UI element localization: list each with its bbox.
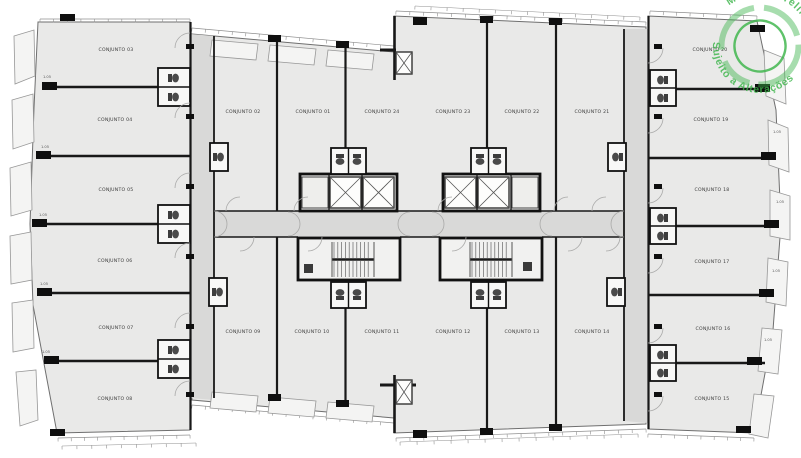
toilet-bowl bbox=[172, 93, 179, 102]
window-panel bbox=[10, 232, 32, 284]
room-label: CONJUNTO 09 bbox=[226, 329, 261, 335]
door-jamb bbox=[480, 428, 493, 435]
toilet-icon bbox=[168, 93, 179, 102]
toilet-tank bbox=[353, 154, 361, 158]
door-jamb bbox=[268, 35, 281, 42]
toilet-icon bbox=[493, 289, 502, 300]
toilet-icon bbox=[336, 289, 345, 300]
window-panel bbox=[326, 402, 374, 422]
toilet-bowl bbox=[657, 214, 664, 223]
room-label: CONJUNTO 12 bbox=[436, 329, 471, 335]
toilet-tank bbox=[168, 211, 172, 219]
room-label: CONJUNTO 17 bbox=[695, 259, 730, 265]
window-panel bbox=[758, 328, 782, 374]
dimension-label: 1.05 bbox=[773, 130, 781, 134]
toilet-tank bbox=[664, 351, 668, 359]
toilet-bowl bbox=[216, 288, 223, 297]
toilet-icon bbox=[168, 346, 179, 355]
door-jamb bbox=[186, 324, 194, 329]
dimension-label: 1.05 bbox=[43, 75, 51, 79]
window-panel bbox=[768, 120, 789, 172]
dimension-label: 1.05 bbox=[41, 145, 49, 149]
toilet-bowl bbox=[172, 74, 179, 83]
toilet-icon bbox=[213, 153, 224, 162]
room-label: CONJUNTO 03 bbox=[99, 47, 134, 53]
room-label: CONJUNTO 22 bbox=[505, 109, 540, 115]
toilet-bowl bbox=[353, 158, 362, 165]
toilet-bowl bbox=[336, 158, 345, 165]
room-label: CONJUNTO 18 bbox=[695, 187, 730, 193]
toilet-tank bbox=[168, 74, 172, 82]
door-jamb bbox=[186, 254, 194, 259]
door-jamb bbox=[654, 44, 662, 49]
room-label: CONJUNTO 15 bbox=[695, 396, 730, 402]
window-panel bbox=[14, 30, 35, 84]
toilet-tank bbox=[168, 93, 172, 101]
toilet-bowl bbox=[657, 76, 664, 85]
door-jamb bbox=[37, 288, 52, 296]
corridor-horizontal bbox=[190, 211, 650, 237]
window-panel bbox=[326, 50, 374, 70]
toilet-tank bbox=[618, 288, 622, 296]
toilet-tank bbox=[664, 76, 668, 84]
door-jamb bbox=[186, 114, 194, 119]
toilet-bowl bbox=[476, 289, 485, 296]
room-label: CONJUNTO 01 bbox=[296, 109, 331, 115]
toilet-bowl bbox=[476, 158, 485, 165]
dimension-label: 1.05 bbox=[764, 338, 772, 342]
toilet-bowl bbox=[217, 153, 224, 162]
toilet-icon bbox=[168, 365, 179, 374]
window-panel bbox=[770, 190, 790, 240]
toilet-icon bbox=[353, 154, 362, 165]
toilet-tank bbox=[168, 346, 172, 354]
stair-fixture bbox=[523, 262, 532, 271]
toilet-icon bbox=[657, 351, 668, 360]
stair-fixture bbox=[304, 264, 313, 273]
door-jamb bbox=[759, 289, 774, 297]
door-jamb bbox=[60, 14, 75, 21]
door-jamb bbox=[654, 392, 662, 397]
toilet-tank bbox=[664, 94, 668, 102]
room-label: CONJUNTO 08 bbox=[98, 396, 133, 402]
window-panel bbox=[210, 392, 258, 412]
room-label: CONJUNTO 19 bbox=[694, 117, 729, 123]
window-panel bbox=[10, 162, 32, 216]
toilet-bowl bbox=[336, 289, 345, 296]
door-jamb bbox=[186, 44, 194, 49]
toilet-icon bbox=[612, 153, 623, 162]
dimension-label: 1.05 bbox=[39, 213, 47, 217]
room-label: CONJUNTO 13 bbox=[505, 329, 540, 335]
room-label: CONJUNTO 16 bbox=[696, 326, 731, 332]
toilet-bowl bbox=[353, 289, 362, 296]
door-jamb bbox=[654, 324, 662, 329]
toilet-tank bbox=[664, 232, 668, 240]
toilet-icon bbox=[212, 288, 223, 297]
toilet-icon bbox=[657, 76, 668, 85]
toilet-bowl bbox=[172, 211, 179, 220]
window-panel bbox=[268, 45, 316, 65]
door-jamb bbox=[480, 16, 493, 23]
room-label: CONJUNTO 21 bbox=[575, 109, 610, 115]
toilet-icon bbox=[168, 74, 179, 83]
door-jamb bbox=[747, 357, 762, 365]
window-line bbox=[62, 443, 196, 446]
room-label: CONJUNTO 23 bbox=[436, 109, 471, 115]
toilet-icon bbox=[168, 230, 179, 239]
door-jamb bbox=[42, 82, 57, 90]
toilet-icon bbox=[657, 369, 668, 378]
toilet-icon bbox=[168, 211, 179, 220]
dimension-label: 1.05 bbox=[776, 200, 784, 204]
door-jamb bbox=[44, 356, 59, 364]
toilet-tank bbox=[213, 153, 217, 161]
corridor-vertical-right bbox=[624, 29, 648, 423]
toilet-icon bbox=[493, 154, 502, 165]
door-jamb bbox=[336, 41, 349, 48]
dimension-label: 1.05 bbox=[772, 269, 780, 273]
corridor-vertical-left bbox=[190, 34, 214, 400]
toilet-tank bbox=[493, 296, 501, 300]
dimension-label: 1.05 bbox=[42, 350, 50, 354]
toilet-tank bbox=[619, 153, 623, 161]
toilet-bowl bbox=[493, 158, 502, 165]
toilet-bowl bbox=[172, 346, 179, 355]
door-jamb bbox=[654, 254, 662, 259]
toilet-tank bbox=[493, 154, 501, 158]
door-jamb bbox=[32, 219, 47, 227]
door-jamb bbox=[186, 392, 194, 397]
toilet-tank bbox=[476, 154, 484, 158]
toilet-bowl bbox=[493, 289, 502, 296]
toilet-bowl bbox=[657, 232, 664, 241]
toilet-icon bbox=[353, 289, 362, 300]
window-panel bbox=[12, 94, 34, 149]
core-room bbox=[302, 177, 328, 208]
door-jamb bbox=[336, 400, 349, 407]
floor-plan-page: CONJUNTO 01CONJUNTO 02CONJUNTO 03CONJUNT… bbox=[0, 0, 801, 458]
toilet-tank bbox=[336, 154, 344, 158]
dimension-label: 1.05 bbox=[40, 282, 48, 286]
window-panel bbox=[766, 258, 788, 306]
door-jamb bbox=[750, 25, 765, 32]
room-label: CONJUNTO 06 bbox=[98, 258, 133, 264]
toilet-tank bbox=[476, 296, 484, 300]
toilet-icon bbox=[476, 289, 485, 300]
door-jamb bbox=[413, 430, 427, 438]
door-jamb bbox=[549, 424, 562, 431]
door-jamb bbox=[413, 17, 427, 25]
toilet-bowl bbox=[657, 94, 664, 103]
toilet-tank bbox=[212, 288, 216, 296]
core-room bbox=[512, 177, 538, 208]
door-jamb bbox=[268, 394, 281, 401]
toilet-bowl bbox=[611, 288, 618, 297]
window-panel bbox=[16, 370, 38, 426]
toilet-tank bbox=[168, 365, 172, 373]
door-jamb bbox=[654, 184, 662, 189]
window-panel bbox=[210, 40, 258, 60]
room-label: CONJUNTO 11 bbox=[365, 329, 400, 335]
room-label: CONJUNTO 07 bbox=[99, 325, 134, 331]
toilet-bowl bbox=[172, 365, 179, 374]
toilet-bowl bbox=[657, 351, 664, 360]
toilet-icon bbox=[476, 154, 485, 165]
door-jamb bbox=[549, 18, 562, 25]
room-label: CONJUNTO 14 bbox=[575, 329, 610, 335]
door-jamb bbox=[186, 184, 194, 189]
toilet-tank bbox=[336, 296, 344, 300]
toilet-tank bbox=[664, 369, 668, 377]
toilet-tank bbox=[664, 214, 668, 222]
toilet-bowl bbox=[612, 153, 619, 162]
toilet-tank bbox=[168, 230, 172, 238]
toilet-icon bbox=[657, 232, 668, 241]
floor-plan-drawing: CONJUNTO 01CONJUNTO 02CONJUNTO 03CONJUNT… bbox=[0, 0, 801, 458]
room-label: CONJUNTO 10 bbox=[295, 329, 330, 335]
door-jamb bbox=[764, 220, 779, 228]
toilet-tank bbox=[353, 296, 361, 300]
door-jamb bbox=[736, 426, 751, 433]
toilet-icon bbox=[611, 288, 622, 297]
door-jamb bbox=[36, 151, 51, 159]
toilet-icon bbox=[657, 214, 668, 223]
room-label: CONJUNTO 02 bbox=[226, 109, 261, 115]
room-label: CONJUNTO 24 bbox=[365, 109, 400, 115]
room-label: CONJUNTO 04 bbox=[98, 117, 133, 123]
room-label: CONJUNTO 05 bbox=[99, 187, 134, 193]
toilet-icon bbox=[336, 154, 345, 165]
door-jamb bbox=[654, 114, 662, 119]
toilet-icon bbox=[657, 94, 668, 103]
toilet-bowl bbox=[172, 230, 179, 239]
door-jamb bbox=[761, 152, 776, 160]
window-panel bbox=[12, 300, 34, 352]
door-jamb bbox=[50, 429, 65, 436]
toilet-bowl bbox=[657, 369, 664, 378]
